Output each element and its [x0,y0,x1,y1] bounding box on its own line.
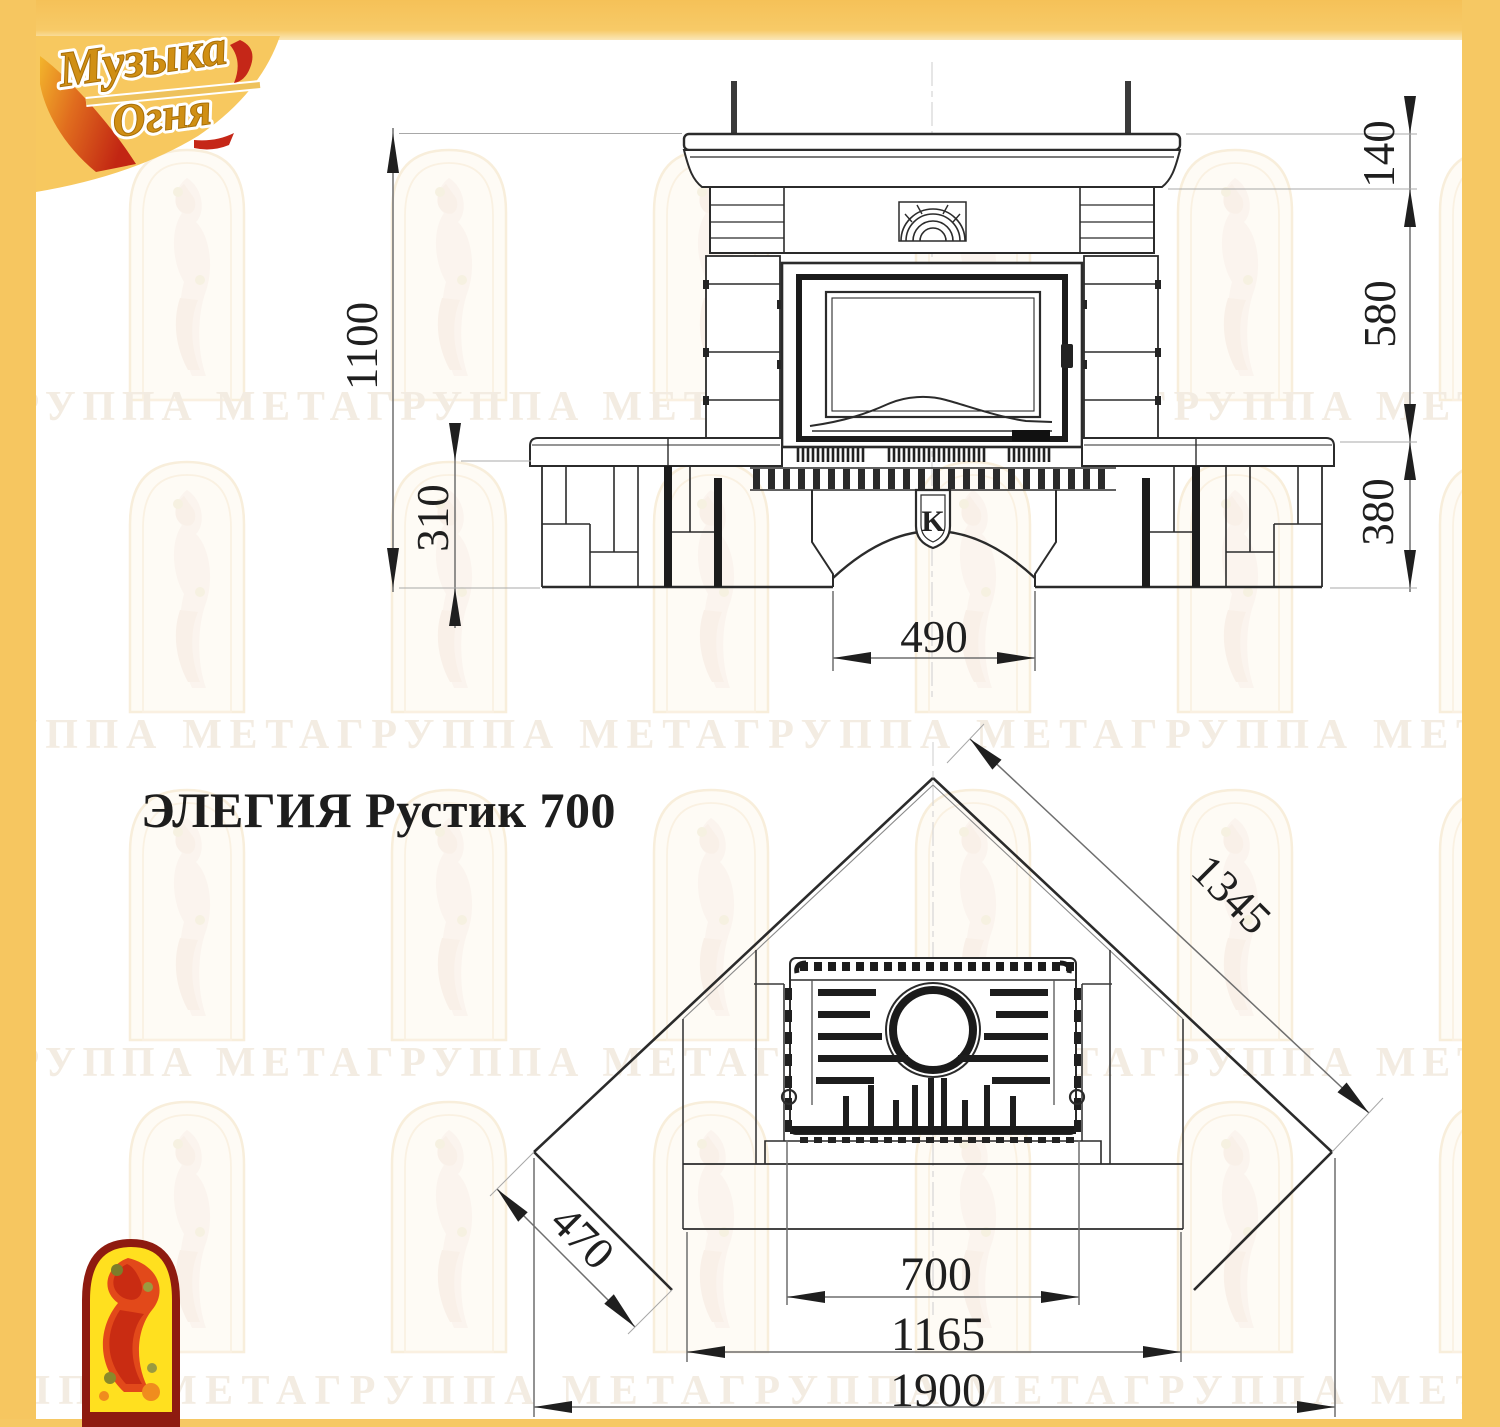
svg-text:580: 580 [1355,280,1405,348]
svg-text:1100: 1100 [337,302,387,390]
svg-text:140: 140 [1354,120,1404,188]
svg-text:K: K [921,505,945,538]
svg-text:380: 380 [1353,478,1403,546]
svg-text:1165: 1165 [891,1308,985,1361]
svg-text:1900: 1900 [890,1364,986,1417]
svg-text:310: 310 [408,484,458,552]
svg-text:490: 490 [900,612,968,662]
svg-text:700: 700 [900,1248,972,1301]
svg-text:ЭЛЕГИЯ Рустик 700: ЭЛЕГИЯ Рустик 700 [141,782,616,838]
